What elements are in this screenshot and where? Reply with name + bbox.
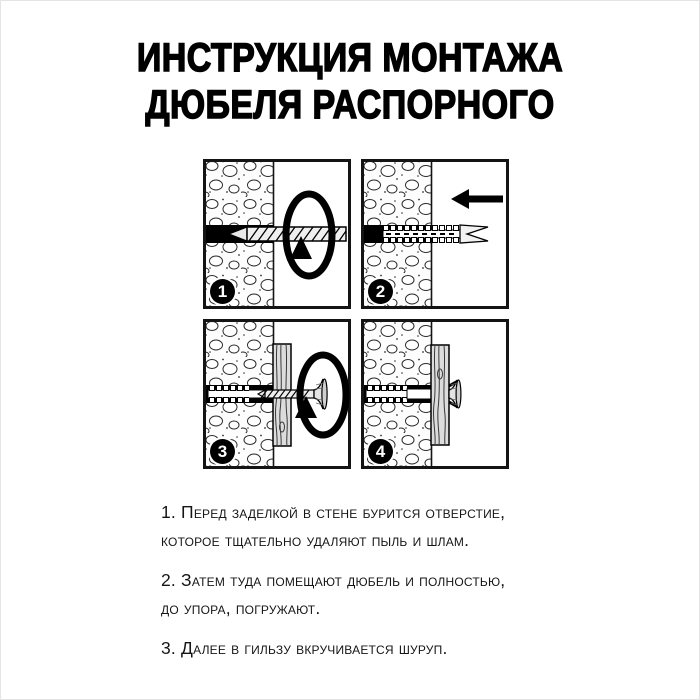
step-panel-3: 3 xyxy=(203,319,351,469)
title-line-2: ДЮБЕЛЯ РАСПОРНОГО xyxy=(53,82,646,129)
instruction-2: 2. Затем туда помещают дюбель и полность… xyxy=(161,566,621,622)
step-badge-3: 3 xyxy=(210,439,235,464)
step-badge-1: 1 xyxy=(210,279,235,304)
instruction-3-line-1: 3. Далее в гильзу вкручивается шуруп. xyxy=(161,634,621,662)
instruction-1: 1. Перед заделкой в стене бурится отверс… xyxy=(161,498,621,554)
step-badge-2: 2 xyxy=(368,279,393,304)
instruction-2-line-2: до упора, погружают. xyxy=(161,594,621,622)
steps-grid: 1 xyxy=(203,159,509,469)
instruction-sheet: ИНСТРУКЦИЯ МОНТАЖА ДЮБЕЛЯ РАСПОРНОГО xyxy=(0,0,700,700)
page-title: ИНСТРУКЦИЯ МОНТАЖА ДЮБЕЛЯ РАСПОРНОГО xyxy=(1,35,699,129)
step-panel-1: 1 xyxy=(203,159,351,309)
instruction-3: 3. Далее в гильзу вкручивается шуруп. xyxy=(161,634,621,662)
instruction-1-line-2: которое тщательно удаляют пыль и шлам. xyxy=(161,526,621,554)
title-line-1: ИНСТРУКЦИЯ МОНТАЖА xyxy=(53,35,646,82)
step-badge-4: 4 xyxy=(368,439,393,464)
step-panel-2: 2 xyxy=(361,159,509,309)
step-panel-4: 4 xyxy=(361,319,509,469)
instructions: 1. Перед заделкой в стене бурится отверс… xyxy=(161,498,621,674)
instruction-1-line-1: 1. Перед заделкой в стене бурится отверс… xyxy=(161,498,621,526)
instruction-2-line-1: 2. Затем туда помещают дюбель и полность… xyxy=(161,566,621,594)
